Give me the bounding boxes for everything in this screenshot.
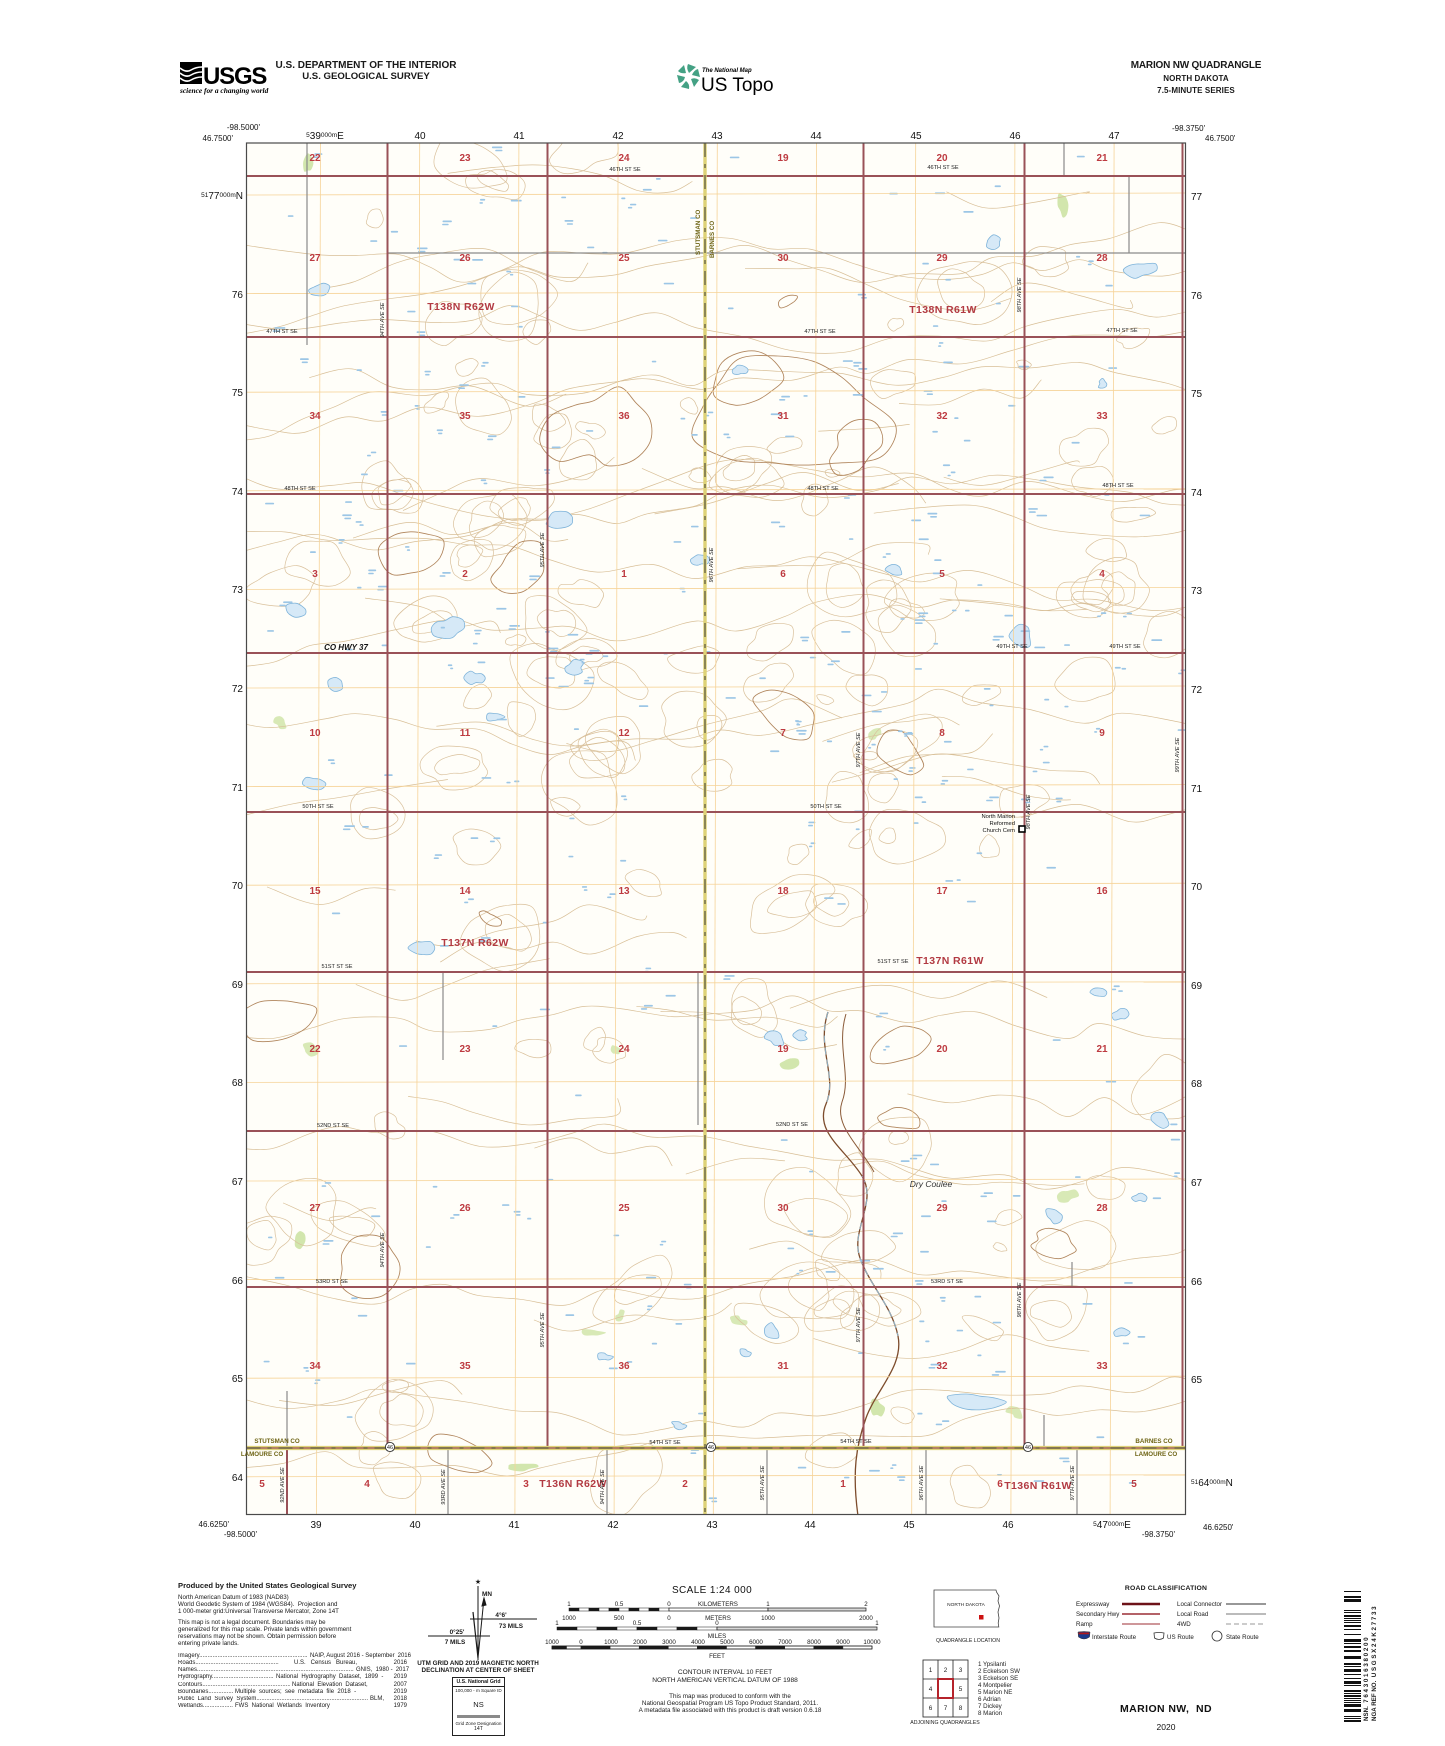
svg-text:NSN. 7 6 4 3 0 1 6 3 8 0 2 0: NSN. 7 6 4 3 0 1 6 3 8 0 2 0 0 — [1363, 1637, 1370, 1721]
svg-text:NGA REF NO. U S G S X 2 4 K 2: NGA REF NO. U S G S X 2 4 K 2 7 7 3 3 — [1371, 1606, 1378, 1721]
